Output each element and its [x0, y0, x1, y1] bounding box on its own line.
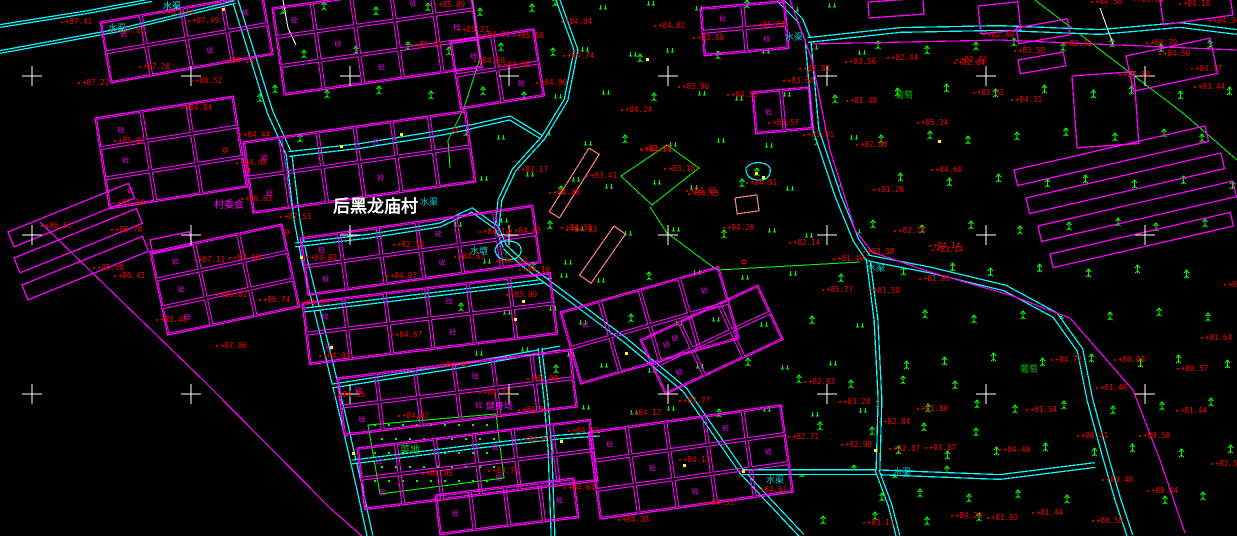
spot-height-dot: [983, 34, 985, 36]
tree-icon: [918, 489, 923, 497]
tree-icon: [849, 380, 854, 388]
grid-cross: [976, 66, 996, 86]
elevation-label: +80.68: [1118, 355, 1146, 364]
building-material-label: 砼: [375, 457, 383, 467]
tree-icon: [901, 376, 906, 384]
tree-icon: [1037, 264, 1042, 272]
elevation-label: +82.87: [893, 444, 920, 453]
tree-icon: [945, 451, 950, 459]
spot-height-dot: [181, 107, 183, 109]
grid-cross: [340, 225, 360, 245]
control-point: [742, 260, 746, 264]
spot-height-dot: [845, 61, 847, 63]
large-building-footprint: [868, 0, 924, 18]
elevation-label: +84.21: [645, 145, 672, 154]
elevation-label: +85.89: [438, 0, 465, 9]
building-material-label: 砼: [765, 107, 773, 117]
building-footprint: [278, 33, 318, 64]
elevation-label: +84.07: [390, 271, 417, 280]
building-footprint: [148, 135, 195, 169]
elevation-label: +80.48: [1106, 475, 1134, 484]
elevation-label: +82.78: [898, 226, 926, 235]
shrub-icon: [859, 408, 867, 412]
shrub-icon: [584, 141, 592, 145]
elevation-label: +84.50: [1163, 49, 1191, 58]
building-material-label: 砼: [377, 173, 385, 183]
building-block: 砼砼: [640, 285, 783, 394]
spot-height-dot: [111, 229, 113, 231]
tree-icon: [1203, 219, 1208, 227]
tree-icon: [991, 353, 996, 361]
building-material-label: 砼: [434, 229, 442, 239]
elevation-label: +84.43: [514, 226, 541, 235]
spot-height-dot: [789, 242, 791, 244]
tree-icon: [325, 90, 330, 98]
spot-height-dot: [319, 355, 321, 357]
field-dot: [409, 438, 411, 440]
tree-icon: [1176, 355, 1181, 363]
elevation-label: +85.05: [1137, 0, 1164, 4]
spot-height-dot: [917, 408, 919, 410]
spot-height-dot: [78, 82, 80, 84]
elevation-label: +87.53: [284, 212, 311, 221]
spot-height-dot: [889, 448, 891, 450]
elevation-label: +82.98: [845, 440, 873, 449]
building-material-label: 砼: [763, 34, 771, 44]
elevation-label: +84.44: [243, 130, 271, 139]
shrub-icon: [858, 50, 866, 54]
utility-point: [742, 470, 745, 473]
elevation-label: +81.87: [929, 443, 956, 452]
tree-icon: [925, 46, 930, 54]
tree-icon: [1021, 311, 1026, 319]
spot-height-dot: [1159, 53, 1161, 55]
tree-icon: [1201, 492, 1206, 500]
tree-icon: [972, 315, 977, 323]
elevation-label: +85.62: [415, 40, 442, 49]
elevation-label: +85.34: [921, 118, 949, 127]
spot-height-dot: [113, 202, 115, 204]
annex-building-footprint: [735, 195, 759, 214]
spot-height-dot: [678, 86, 680, 88]
spot-height-dot: [1119, 74, 1121, 76]
spot-height-dot: [932, 249, 934, 251]
spot-height-dot: [566, 229, 568, 231]
building-footprint: [435, 148, 474, 185]
tree-icon: [1209, 398, 1214, 406]
elevation-label: +83.68: [787, 76, 815, 85]
grid-cross: [181, 384, 201, 404]
building-material-label: 砼: [206, 45, 214, 55]
elevation-label: +83.18: [668, 164, 696, 173]
shrub-icon: [746, 358, 751, 366]
spot-height-dot: [229, 257, 231, 259]
tree-icon: [1113, 133, 1118, 141]
elevation-label: +83.38: [867, 247, 895, 256]
elevation-label: +81.46: [1100, 383, 1128, 392]
field-boundary-line: [650, 207, 860, 270]
spot-height-dot: [519, 269, 521, 271]
elevation-label: +81.48: [850, 96, 878, 105]
building-footprint: [313, 0, 353, 30]
fitness-ground-label: 健身场: [486, 400, 513, 412]
grid-cross: [658, 66, 678, 86]
tree-icon: [1018, 226, 1023, 234]
elevation-label: +80.58: [1143, 431, 1171, 440]
building-material-label: 砼: [379, 487, 387, 497]
spot-height-dot: [723, 227, 725, 229]
control-point: [285, 230, 289, 234]
field-dot: [409, 466, 411, 468]
field-dot: [388, 480, 390, 482]
building-footprint: [152, 166, 199, 200]
spot-height-dot: [919, 278, 921, 280]
spot-height-dot: [863, 522, 865, 524]
tree-icon: [1042, 85, 1047, 93]
grid-cross: [658, 225, 678, 245]
elevation-label: +84.18: [1183, 0, 1211, 8]
elevation-label: +84.40: [442, 360, 470, 369]
field-dot: [423, 466, 425, 468]
tree-icon: [1108, 312, 1113, 320]
shrub-icon: [605, 184, 613, 188]
elevation-label: +84.07: [524, 435, 551, 444]
shrub-icon: [712, 317, 720, 321]
elevation-label: +84.79: [1150, 38, 1177, 47]
elevation-label: +85.77: [826, 285, 853, 294]
elevation-label: +84.84: [565, 17, 593, 26]
elevation-label: +82.59: [1215, 459, 1237, 468]
elevation-label: +84.68: [478, 56, 506, 65]
elevation-label: +88.14: [227, 56, 255, 65]
field-dot: [374, 480, 376, 482]
building-block: 砼砼: [450, 29, 545, 109]
elevation-label: +83.44: [1198, 82, 1226, 91]
spot-height-dot: [1177, 368, 1179, 370]
spot-height-dot: [61, 21, 63, 23]
spot-height-dot: [561, 227, 563, 229]
elevation-label: +87.06: [220, 341, 248, 350]
spot-height-dot: [1014, 50, 1016, 52]
elevation-label: +80.41: [1081, 431, 1108, 440]
elevation-label: +83.90: [682, 82, 710, 91]
spot-height-dot: [954, 62, 956, 64]
spot-height-dot: [856, 144, 858, 146]
ponds-layer: [495, 163, 770, 260]
elevation-label: +84.14: [483, 227, 511, 236]
road-core: [868, 258, 1130, 536]
spot-height-dot: [561, 21, 563, 23]
tree-icon: [273, 85, 278, 93]
elevation-label: +84.53: [731, 90, 758, 99]
elevation-label: +82.83: [808, 377, 835, 386]
field-dot: [458, 424, 460, 426]
elevation-label: +82.40: [987, 30, 1015, 39]
spot-height-dot: [411, 44, 413, 46]
spot-height-dot: [803, 134, 805, 136]
grid-cross: [1135, 384, 1155, 404]
grid-cross: [499, 66, 519, 86]
spot-height-dot: [1114, 359, 1116, 361]
spot-height-dot: [163, 12, 165, 14]
large-building-footprint: [8, 183, 135, 247]
spot-height-dot: [564, 487, 566, 489]
building-footprint: [398, 153, 437, 190]
elevation-label: +86.41: [118, 271, 145, 280]
field-dot: [472, 424, 474, 426]
elevation-label: +84.82: [658, 21, 685, 30]
spot-height-dot: [510, 230, 512, 232]
spot-height-dot: [1091, 1, 1093, 3]
spot-height-dot: [479, 34, 481, 36]
building-material-label: 砼: [491, 442, 499, 452]
tree-icon: [871, 220, 876, 228]
shrub-icon: [629, 314, 634, 322]
shrub-icon: [572, 177, 580, 181]
building-material-label: 砼: [649, 463, 657, 473]
annex-building-footprint: [549, 148, 599, 218]
spot-height-dot: [746, 182, 748, 184]
spot-height-dot: [527, 378, 529, 380]
spot-height-dot: [1032, 512, 1034, 514]
elevation-label: +84.01: [483, 30, 510, 39]
tree-icon: [478, 8, 483, 16]
building-material-label: 砼: [700, 285, 709, 296]
tree-icon: [1092, 448, 1097, 456]
building-footprint: [401, 46, 441, 77]
tree-icon: [898, 173, 903, 181]
spot-height-dot: [216, 345, 218, 347]
elevation-label: +86.63: [245, 194, 272, 203]
building-material-label: 砼: [321, 311, 329, 321]
tree-icon: [975, 400, 980, 408]
tree-icon: [1045, 179, 1050, 187]
elevation-label: +83.57: [772, 118, 799, 127]
spot-height-dot: [334, 394, 336, 396]
spot-height-dot: [987, 517, 989, 519]
utility-point: [222, 8, 225, 11]
spot-height-dot: [520, 439, 522, 441]
road-casing: [470, 118, 543, 138]
tree-icon: [1062, 401, 1067, 409]
tree-icon: [928, 131, 933, 139]
spot-height-dot: [306, 257, 308, 259]
tree-icon: [1163, 496, 1168, 504]
cad-map-canvas[interactable]: 后黑龙庙村 砼砼砼砼砼砼砼砼砼砼砼砼砼砼砼砼砼砼砼砼砼砼砼砼砼砼砼砼砼砼砼砼砼砼…: [0, 0, 1237, 536]
shrub-icon: [768, 228, 776, 232]
spot-height-dot: [191, 80, 193, 82]
elevation-label: +82.71: [792, 432, 819, 441]
tree-icon: [1225, 360, 1230, 368]
building-footprint: [594, 457, 633, 488]
elevation-label: +84.60: [935, 165, 963, 174]
canal-label: 水渠: [163, 0, 181, 12]
elevation-label: +83.56: [849, 57, 877, 66]
pond-label: 水塘: [470, 245, 488, 257]
grid-cross: [22, 384, 42, 404]
spot-height-dot: [973, 92, 975, 94]
field-dot: [388, 424, 390, 426]
spot-height-dot: [664, 168, 666, 170]
building-footprint: [194, 128, 241, 162]
spot-height-dot: [693, 37, 695, 39]
control-point: [223, 148, 227, 152]
shrub-icon: [599, 5, 607, 9]
tree-icon: [947, 178, 952, 186]
tree-icon: [1016, 490, 1021, 498]
tree-icon: [1135, 265, 1140, 273]
building-material-label: 砼: [378, 62, 386, 72]
utility-point: [625, 352, 628, 355]
parcel-boundary-line: [790, 0, 1185, 533]
elevation-label: +87.10: [1123, 70, 1151, 79]
grid-cross: [976, 384, 996, 404]
elevation-label: +87.34: [117, 198, 145, 207]
spot-height-dot: [474, 60, 476, 62]
field-dot: [458, 480, 460, 482]
tree-icon: [1206, 313, 1211, 321]
shrub-icon: [560, 273, 568, 277]
elevation-label: +83.13: [867, 518, 894, 527]
building-material-label: 砼: [475, 400, 483, 410]
canal-label: 水渠: [893, 466, 911, 478]
spot-height-dot: [839, 401, 841, 403]
elevation-label: +84.31: [483, 388, 510, 397]
tree-icon: [818, 422, 823, 430]
elevation-label: +81.54: [1030, 405, 1058, 414]
elevation-label: +84.02: [402, 411, 429, 420]
elevation-label: +84.60: [500, 256, 528, 265]
utility-point: [352, 452, 355, 455]
elevation-label: +84.51: [707, 498, 734, 507]
elevation-label: +81.26: [877, 185, 905, 194]
elevation-label: +83.28: [843, 397, 871, 406]
spot-height-dot: [1201, 337, 1203, 339]
spot-height-dot: [386, 275, 388, 277]
shrub-icon: [740, 179, 745, 187]
elevation-label: +81.44: [1180, 406, 1208, 415]
elevation-label: +81.58: [873, 286, 901, 295]
elevation-label: +82.64: [958, 58, 986, 67]
elevation-label: +84.72: [1055, 355, 1082, 364]
shrub-icon: [805, 233, 813, 237]
shrub-icon: [717, 138, 725, 142]
shrub-icon: [781, 365, 789, 369]
spot-height-dot: [951, 515, 953, 517]
elevation-label: +87.08: [233, 253, 261, 262]
spot-height-dot: [846, 100, 848, 102]
elevation-label: +82.58: [397, 240, 425, 249]
shrub-icon: [459, 303, 464, 311]
elevation-label: +84.55: [338, 390, 365, 399]
elevation-label: +81.91: [1228, 280, 1237, 289]
building-footprint: [349, 325, 391, 358]
building-material-label: 砼: [445, 296, 453, 306]
tree-icon: [967, 494, 972, 502]
grid-cross: [817, 384, 837, 404]
elevation-label: +85.09: [510, 290, 537, 299]
spot-height-dot: [454, 256, 456, 258]
utility-point: [522, 300, 525, 303]
tree-icon: [966, 136, 971, 144]
shrub-icon: [666, 48, 674, 52]
large-building-footprint: [1018, 52, 1066, 74]
shrub-icon: [548, 221, 553, 229]
elevation-label: +83.14: [936, 245, 964, 254]
elevation-label: +87.28: [143, 62, 171, 71]
spot-height-dot: [239, 134, 241, 136]
elevation-label: +84.04: [323, 351, 351, 360]
utility-point: [755, 172, 758, 175]
elevation-label: +85.66: [517, 31, 545, 40]
elevation-label: +84.64: [568, 483, 596, 492]
tree-icon: [1015, 132, 1020, 140]
building-material-label: 砼: [177, 284, 186, 294]
building-footprint: [357, 22, 397, 53]
elevation-label: +85.31: [977, 88, 1004, 97]
tree-icon: [950, 263, 955, 271]
cad-map-viewport[interactable]: 后黑龙庙村 后黑龙庙村 砼砼砼砼砼砼砼砼砼砼砼砼砼砼砼砼砼砼砼砼砼砼砼砼砼砼砼砼…: [0, 0, 1237, 536]
elevation-label: +87.41: [65, 17, 92, 26]
field-dot: [472, 452, 474, 454]
building-footprint: [628, 423, 667, 454]
shrub-icon: [833, 95, 838, 103]
building-material-label: 砼: [117, 125, 125, 135]
tree-icon: [942, 357, 947, 365]
elevation-label: +84.38: [622, 515, 650, 524]
grid-cross: [22, 66, 42, 86]
large-building-footprint: [1014, 126, 1209, 186]
canal-label: 水渠: [785, 31, 803, 43]
building-footprint: [353, 0, 393, 24]
field-dot: [381, 438, 383, 440]
shrub-icon: [475, 351, 483, 355]
vegetable-field-label: 菜地: [400, 443, 420, 456]
elevation-label: +84.62: [760, 485, 787, 494]
shrub-icon: [850, 135, 858, 139]
building-material-label: 砼: [674, 366, 684, 377]
building-footprint: [321, 57, 361, 88]
tree-icon: [322, 2, 327, 10]
spot-height-dot: [703, 502, 705, 504]
spot-height-dot: [1209, 20, 1211, 22]
spot-height-dot: [1051, 359, 1053, 361]
spot-height-dot: [506, 294, 508, 296]
spot-height-dot: [586, 175, 588, 177]
elevation-label: +83.58: [1018, 46, 1046, 55]
tree-icon: [953, 381, 958, 389]
spot-height-dot: [513, 35, 515, 37]
building-footprint: [667, 417, 706, 448]
tree-icon: [969, 221, 974, 229]
elevation-label: +84.53: [522, 405, 549, 414]
building-material-label: 砼: [438, 257, 446, 267]
spot-height-dot: [887, 57, 889, 59]
utility-point: [560, 440, 563, 443]
spot-height-dot: [1139, 435, 1141, 437]
building-material-label: 砼: [449, 327, 457, 337]
tree-icon: [551, 48, 556, 56]
tree-icon: [429, 91, 434, 99]
spot-height-dot: [114, 275, 116, 277]
shrub-icon: [597, 278, 605, 282]
spot-height-dot: [621, 109, 623, 111]
building-footprint: [636, 481, 675, 512]
field-dot: [430, 480, 432, 482]
shrub-icon: [839, 274, 844, 282]
canal-label: 水渠: [108, 22, 126, 34]
elevation-label: +81.64: [1205, 333, 1233, 342]
